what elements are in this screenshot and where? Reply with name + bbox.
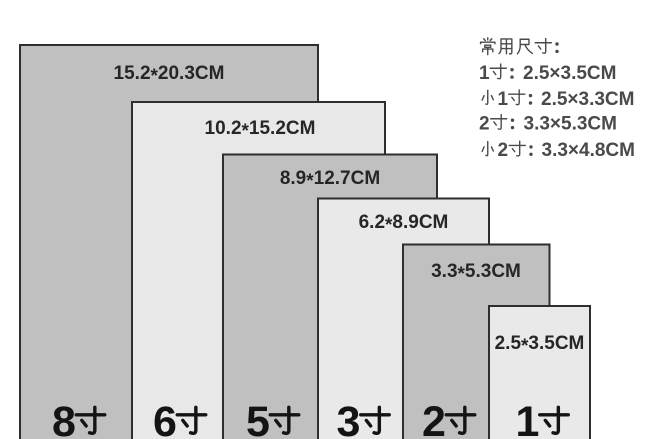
svg-text:10.2*15.2CM: 10.2*15.2CM [205, 118, 316, 142]
svg-text:2: 2 [422, 398, 446, 439]
svg-text:6.2*8.9CM: 6.2*8.9CM [359, 212, 449, 236]
svg-text:1: 1 [498, 89, 509, 110]
svg-text:8.9*12.7CM: 8.9*12.7CM [280, 168, 380, 192]
svg-text:6: 6 [153, 398, 177, 439]
svg-text:8: 8 [52, 398, 76, 439]
svg-text:3.3×5.3CM: 3.3×5.3CM [524, 113, 617, 134]
svg-text:2: 2 [498, 140, 509, 161]
svg-text:2.5×3.3CM: 2.5×3.3CM [541, 89, 634, 110]
svg-text:1: 1 [479, 63, 490, 84]
svg-text:3.3*5.3CM: 3.3*5.3CM [431, 261, 521, 285]
svg-text:1: 1 [516, 398, 540, 439]
svg-text:15.2*20.3CM: 15.2*20.3CM [114, 63, 225, 87]
svg-text:3: 3 [337, 398, 361, 439]
svg-text:3.3×4.8CM: 3.3×4.8CM [542, 140, 635, 161]
svg-text:2.5*3.5CM: 2.5*3.5CM [495, 333, 585, 357]
svg-text:2: 2 [479, 113, 490, 134]
svg-text:5: 5 [246, 398, 270, 439]
svg-text:2.5×3.5CM: 2.5×3.5CM [523, 63, 616, 84]
